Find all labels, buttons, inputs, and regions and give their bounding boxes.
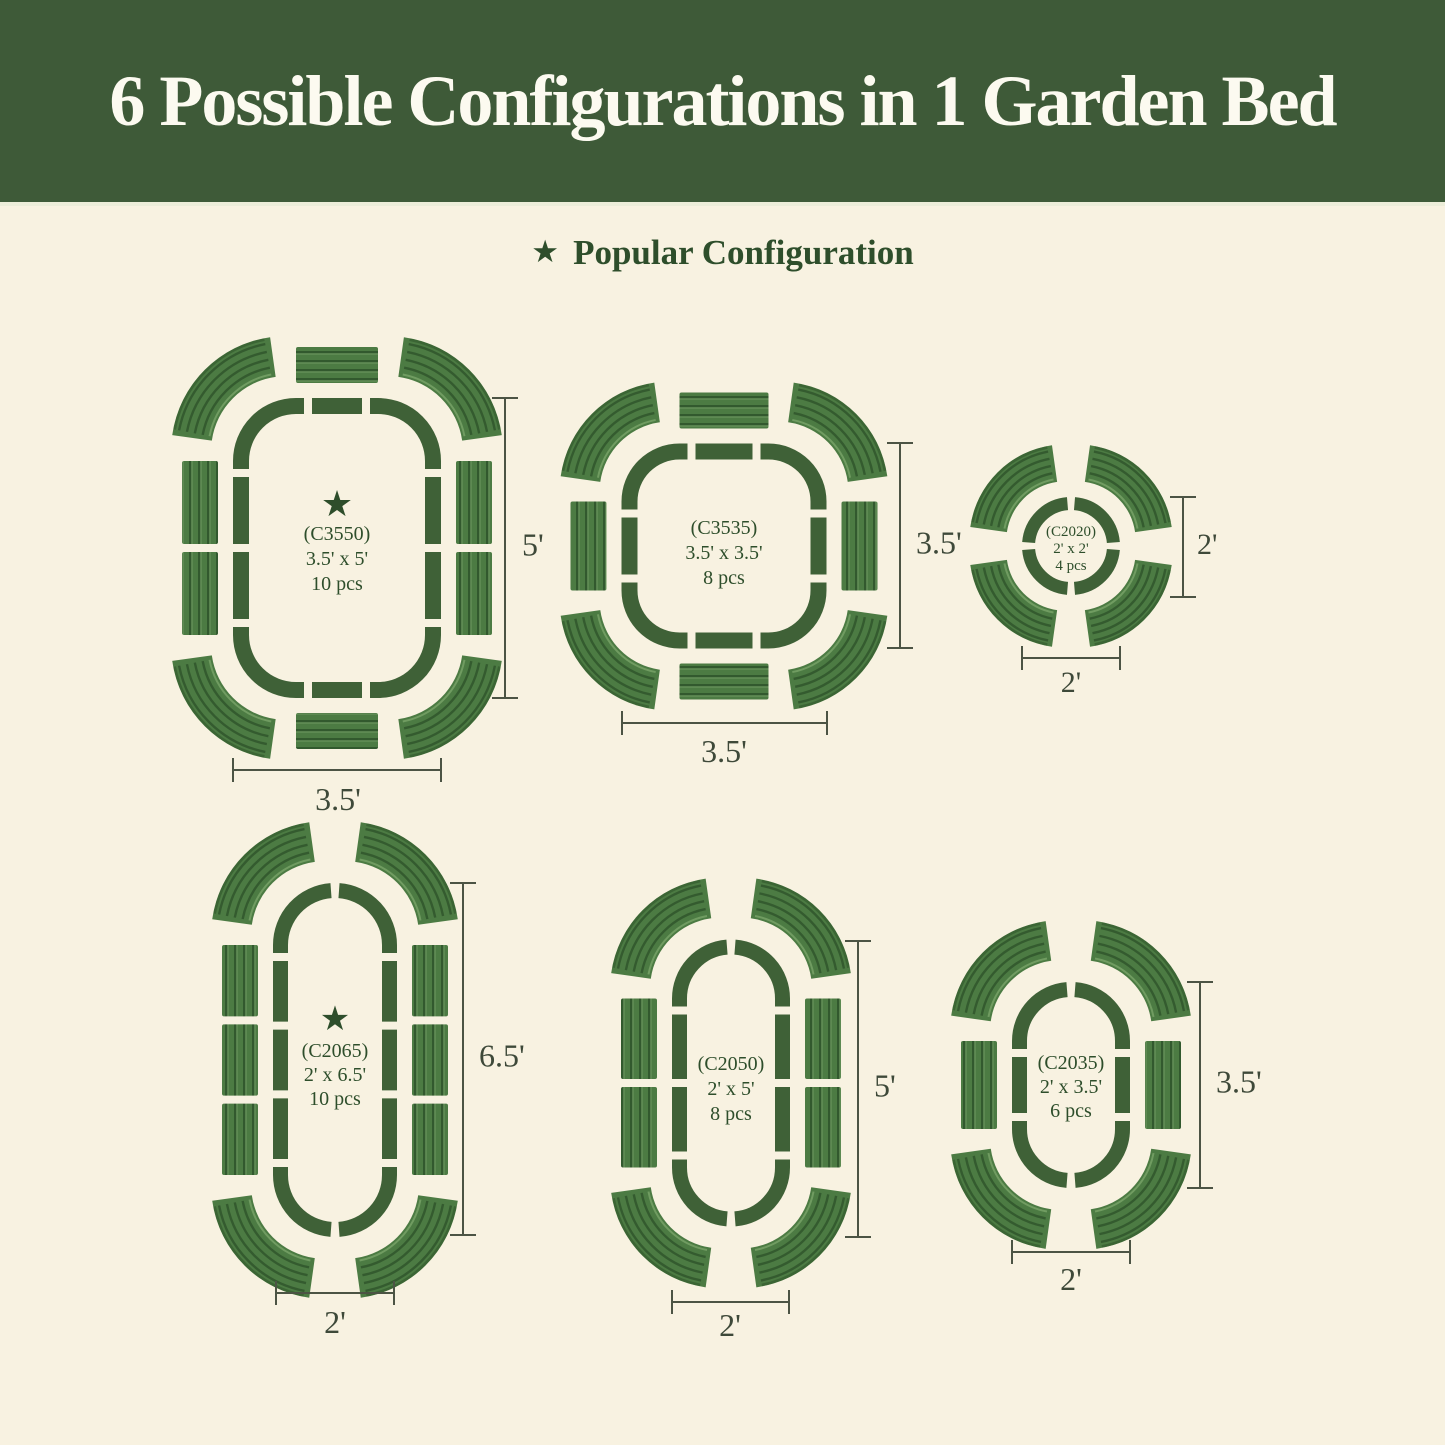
popular-legend-label: Popular Configuration <box>573 233 914 272</box>
config-pcs-label: 10 pcs <box>309 1088 361 1110</box>
config-id-label: (C2050) <box>698 1053 765 1075</box>
straight-panel <box>680 393 769 429</box>
straight-panel <box>680 664 769 700</box>
bed-outline-corner <box>630 452 688 510</box>
config-c2020: (C2020)2' x 2'4 pcs2'2' <box>970 445 1217 699</box>
config-id-label: (C2065) <box>302 1040 369 1062</box>
bed-outline-corner <box>1020 990 1068 1049</box>
bed-outline-corner <box>1020 1121 1068 1180</box>
height-dimension: 3.5' <box>1187 982 1262 1188</box>
config-pcs-label: 4 pcs <box>1055 558 1086 574</box>
straight-panel <box>222 1104 258 1175</box>
config-c2035: (C2035)2' x 3.5'6 pcs3.5'2' <box>951 921 1262 1297</box>
width-dim-label: 2' <box>324 1304 346 1340</box>
straight-panel <box>1145 1041 1181 1129</box>
height-dim-label: 5' <box>874 1067 896 1103</box>
height-dim-label: 3.5' <box>1216 1063 1262 1099</box>
straight-panel <box>805 1087 841 1168</box>
height-dimension: 5' <box>845 941 896 1237</box>
width-dim-label: 3.5' <box>315 781 361 817</box>
bed-outline-corner <box>735 1160 783 1219</box>
config-id-label: (C2035) <box>1038 1052 1105 1074</box>
configurations-diagram: ★(C3550)3.5' x 5'10 pcs5'3.5'(C3535)3.5'… <box>0 0 1445 1445</box>
config-id-label: (C3550) <box>304 523 371 545</box>
straight-panel <box>842 502 878 591</box>
straight-panel <box>412 1024 448 1095</box>
height-dim-label: 3.5' <box>916 524 962 560</box>
height-dim-label: 6.5' <box>479 1037 525 1073</box>
straight-panel <box>222 945 258 1016</box>
bed-outline-corner <box>735 947 783 1006</box>
straight-panel <box>182 552 218 635</box>
star-icon: ★ <box>531 234 559 270</box>
config-c2065: ★(C2065)2' x 6.5'10 pcs6.5'2' <box>212 822 525 1340</box>
bed-outline-corner <box>241 406 304 469</box>
straight-panel <box>296 713 378 749</box>
width-dimension: 3.5' <box>622 711 827 769</box>
height-dim-label: 5' <box>522 526 544 562</box>
config-size-label: 3.5' x 5' <box>306 548 368 570</box>
config-pcs-label: 6 pcs <box>1050 1100 1092 1122</box>
bed-outline-corner <box>281 891 332 953</box>
straight-panel <box>456 461 492 544</box>
config-pcs-label: 10 pcs <box>311 573 363 595</box>
config-id-label: (C3535) <box>691 517 758 539</box>
bed-outline-corner <box>339 891 390 953</box>
straight-panel <box>296 347 378 383</box>
bed-outline-corner <box>1075 1121 1123 1180</box>
height-dimension: 5' <box>492 398 544 698</box>
config-pcs-label: 8 pcs <box>710 1103 752 1125</box>
height-dimension: 2' <box>1170 497 1217 597</box>
width-dimension: 3.5' <box>233 758 441 817</box>
straight-panel <box>182 461 218 544</box>
straight-panel <box>222 1024 258 1095</box>
bed-outline-corner <box>1075 990 1123 1049</box>
width-dim-label: 3.5' <box>701 733 747 769</box>
width-dim-label: 2' <box>1061 666 1081 699</box>
bed-outline-corner <box>241 627 304 690</box>
width-dim-label: 2' <box>1060 1261 1082 1297</box>
page-title: 6 Possible Configurations in 1 Garden Be… <box>109 60 1335 143</box>
bed-outline-corner <box>630 583 688 641</box>
config-c3535: (C3535)3.5' x 3.5'8 pcs3.5'3.5' <box>561 383 962 769</box>
width-dimension: 2' <box>1022 646 1120 699</box>
height-dimension: 6.5' <box>450 883 525 1235</box>
straight-panel <box>412 1104 448 1175</box>
config-size-label: 2' x 6.5' <box>304 1064 366 1086</box>
straight-panel <box>412 945 448 1016</box>
infographic-canvas: ★(C3550)3.5' x 5'10 pcs5'3.5'(C3535)3.5'… <box>0 0 1445 1445</box>
straight-panel <box>571 502 607 591</box>
bed-outline-corner <box>370 627 433 690</box>
config-size-label: 3.5' x 3.5' <box>685 542 762 564</box>
bed-outline-corner <box>370 406 433 469</box>
config-size-label: 2' x 5' <box>707 1078 754 1100</box>
popular-legend: ★Popular Configuration <box>0 226 1445 279</box>
bed-outline-corner <box>680 1160 728 1219</box>
width-dimension: 2' <box>1012 1240 1130 1297</box>
popular-star-icon: ★ <box>321 484 353 525</box>
straight-panel <box>456 552 492 635</box>
config-c2050: (C2050)2' x 5'8 pcs5'2' <box>611 879 896 1343</box>
bed-outline-corner <box>761 583 819 641</box>
config-size-label: 2' x 2' <box>1053 541 1089 557</box>
popular-star-icon: ★ <box>320 999 350 1039</box>
bed-outline-corner <box>761 452 819 510</box>
config-id-label: (C2020) <box>1046 524 1096 540</box>
config-c3550: ★(C3550)3.5' x 5'10 pcs5'3.5' <box>172 337 544 817</box>
straight-panel <box>621 999 657 1080</box>
config-pcs-label: 8 pcs <box>703 567 745 589</box>
bed-outline-corner <box>281 1167 332 1229</box>
straight-panel <box>961 1041 997 1129</box>
title-banner: 6 Possible Configurations in 1 Garden Be… <box>0 0 1445 206</box>
width-dimension: 2' <box>672 1290 789 1343</box>
config-size-label: 2' x 3.5' <box>1040 1076 1102 1098</box>
straight-panel <box>621 1087 657 1168</box>
bed-outline-corner <box>339 1167 390 1229</box>
height-dim-label: 2' <box>1197 528 1217 561</box>
bed-outline-corner <box>680 947 728 1006</box>
straight-panel <box>805 999 841 1080</box>
width-dim-label: 2' <box>719 1307 741 1343</box>
height-dimension: 3.5' <box>887 443 962 648</box>
